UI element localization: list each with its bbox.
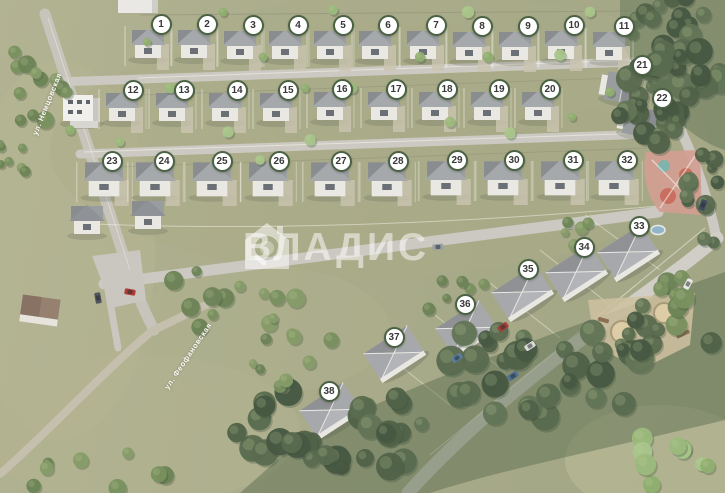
plot-marker-22[interactable]: 22	[652, 88, 673, 109]
plot-marker-36[interactable]: 36	[455, 294, 476, 315]
plot-marker-3[interactable]: 3	[243, 15, 264, 36]
plot-marker-8[interactable]: 8	[472, 16, 493, 37]
plot-marker-37[interactable]: 37	[384, 327, 405, 348]
plot-marker-1[interactable]: 1	[151, 14, 172, 35]
plot-marker-10[interactable]: 10	[564, 15, 585, 36]
plot-marker-11[interactable]: 11	[614, 16, 635, 37]
plot-marker-21[interactable]: 21	[632, 55, 653, 76]
plot-marker-6[interactable]: 6	[378, 15, 399, 36]
plot-marker-30[interactable]: 30	[504, 150, 525, 171]
plot-marker-23[interactable]: 23	[102, 151, 123, 172]
plot-marker-2[interactable]: 2	[197, 14, 218, 35]
plot-marker-25[interactable]: 25	[212, 151, 233, 172]
plot-marker-17[interactable]: 17	[386, 79, 407, 100]
plot-marker-5[interactable]: 5	[333, 15, 354, 36]
plot-marker-18[interactable]: 18	[437, 79, 458, 100]
plot-marker-29[interactable]: 29	[447, 150, 468, 171]
plot-marker-27[interactable]: 27	[331, 151, 352, 172]
plot-marker-28[interactable]: 28	[388, 151, 409, 172]
plot-marker-4[interactable]: 4	[288, 15, 309, 36]
pool	[651, 226, 665, 235]
plot-marker-31[interactable]: 31	[563, 150, 584, 171]
plot-marker-20[interactable]: 20	[540, 79, 561, 100]
plot-marker-34[interactable]: 34	[574, 237, 595, 258]
plot-marker-33[interactable]: 33	[629, 216, 650, 237]
plot-marker-35[interactable]: 35	[518, 259, 539, 280]
plot-marker-13[interactable]: 13	[174, 80, 195, 101]
plot-marker-26[interactable]: 26	[269, 151, 290, 172]
site-plan-scene	[0, 0, 725, 493]
plot-marker-14[interactable]: 14	[227, 80, 248, 101]
plot-marker-16[interactable]: 16	[332, 79, 353, 100]
site-plan-map: ВЛАДИС ул. Немцовская ул. Феофановская 1…	[0, 0, 725, 493]
plot-marker-12[interactable]: 12	[123, 80, 144, 101]
plot-marker-32[interactable]: 32	[617, 150, 638, 171]
plot-marker-19[interactable]: 19	[489, 79, 510, 100]
plot-marker-15[interactable]: 15	[278, 80, 299, 101]
plot-marker-24[interactable]: 24	[154, 151, 175, 172]
plot-marker-9[interactable]: 9	[518, 16, 539, 37]
plot-marker-7[interactable]: 7	[426, 15, 447, 36]
plot-marker-38[interactable]: 38	[319, 381, 340, 402]
